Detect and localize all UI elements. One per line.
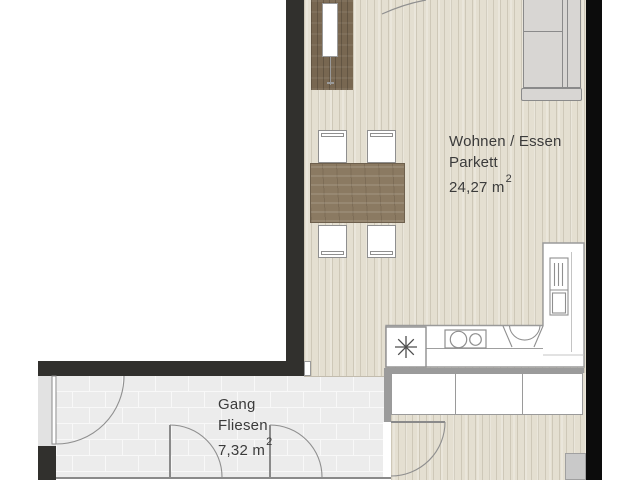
corridor-label: Gang Fliesen 7,32 m2 — [218, 394, 271, 461]
wardrobe-insert — [322, 3, 338, 57]
clothes-rail-end — [327, 82, 334, 84]
wall-end-cap — [304, 361, 311, 376]
door-opening-left — [38, 376, 56, 446]
sofa-armrest — [521, 88, 582, 101]
chair-backrest — [321, 133, 344, 137]
corridor-name: Gang — [218, 394, 271, 415]
living-room-label: Wohnen / Essen Parkett 24,27 m2 — [449, 131, 562, 198]
closet-row — [391, 373, 583, 415]
living-room-flooring: Parkett — [449, 152, 562, 173]
utility-box — [565, 453, 586, 480]
chair-top-right — [367, 130, 396, 163]
corridor-area: 7,32 m2 — [218, 436, 271, 461]
door-opening-bedroom — [383, 422, 391, 480]
corridor-flooring: Fliesen — [218, 415, 271, 436]
wall-right — [586, 0, 602, 480]
dining-table — [310, 163, 405, 223]
chair-bottom-left — [318, 225, 347, 258]
closet-divider — [522, 374, 523, 414]
chair-backrest — [321, 251, 344, 255]
chair-backrest — [370, 251, 393, 255]
sofa-backrest-line — [562, 0, 568, 87]
wardrobe — [311, 0, 353, 90]
floor-threshold-line — [304, 376, 384, 377]
chair-top-left — [318, 130, 347, 163]
wall-bedroom-left — [384, 368, 391, 422]
living-room-name: Wohnen / Essen — [449, 131, 562, 152]
wall-living-left — [286, 0, 304, 376]
closet-divider — [455, 374, 456, 414]
clothes-rail — [330, 57, 331, 85]
sofa-cushion-divider — [524, 31, 563, 32]
living-room-area: 24,27 m2 — [449, 173, 562, 198]
chair-bottom-right — [367, 225, 396, 258]
wall-corridor-top — [38, 361, 304, 376]
sofa — [523, 0, 581, 88]
chair-backrest — [370, 133, 393, 137]
wall-corridor-bottom-line — [56, 477, 391, 479]
floor-plan-canvas: Wohnen / Essen Parkett 24,27 m2 Gang Fli… — [0, 0, 640, 480]
